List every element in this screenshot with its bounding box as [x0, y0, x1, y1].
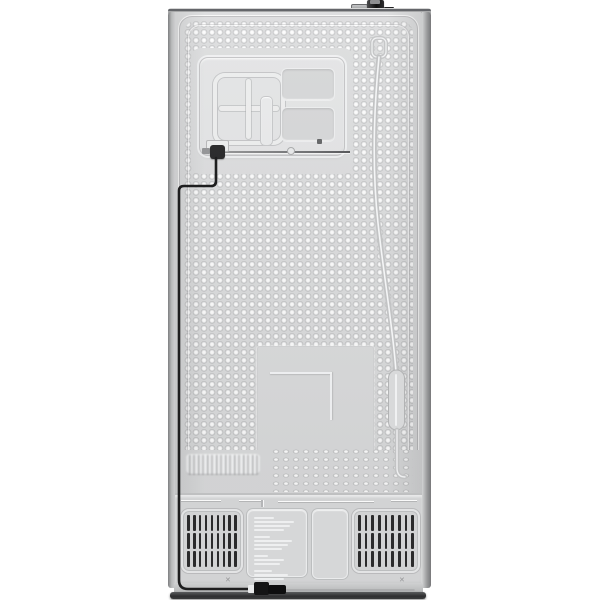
panel-lighting: [175, 12, 422, 493]
vent-slat: [234, 515, 237, 531]
vent-slat: [228, 515, 231, 531]
vent-slat: [193, 533, 196, 549]
right-side-wall: [422, 12, 431, 588]
base-strip: [174, 583, 423, 592]
mid-access-panel: [312, 509, 348, 579]
vent-slat: [391, 515, 394, 531]
vent-grille-right: [352, 509, 420, 573]
vent-slat: [391, 533, 394, 549]
vent-slat: [398, 515, 401, 531]
seam-tab: [239, 500, 261, 502]
vent-slat: [205, 515, 208, 531]
vent-slat: [405, 515, 408, 531]
rating-label: [247, 509, 307, 577]
vent-slat: [405, 551, 408, 567]
vent-slat: [193, 551, 196, 567]
rating-label-lines: [254, 517, 300, 591]
vent-slat: [378, 533, 381, 549]
vent-slat: [365, 515, 368, 531]
label-line: [254, 529, 284, 531]
seam-tab: [391, 500, 417, 502]
vent-slat: [199, 515, 202, 531]
vent-slat: [211, 533, 214, 549]
vent-slat: [365, 551, 368, 567]
vent-slat: [223, 533, 226, 549]
vent-slat-row: [358, 515, 414, 531]
vent-slat: [371, 515, 374, 531]
label-line-group: [254, 517, 300, 531]
label-line: [254, 578, 284, 580]
vent-slat: [193, 515, 196, 531]
vent-slat: [223, 551, 226, 567]
vent-slat: [217, 515, 220, 531]
vent-slat: [371, 551, 374, 567]
label-line: [254, 544, 288, 546]
vent-slat: [228, 533, 231, 549]
vent-slat: [385, 551, 388, 567]
vent-slat: [211, 551, 214, 567]
label-line: [254, 525, 290, 527]
vent-grille-left: [181, 509, 243, 573]
vent-slat: [234, 551, 237, 567]
vent-slat: [234, 533, 237, 549]
vent-slat-row: [187, 551, 237, 567]
vent-slat: [371, 533, 374, 549]
vent-slat: [217, 551, 220, 567]
vent-slat: [205, 533, 208, 549]
vent-slat: [378, 515, 381, 531]
label-line: [254, 548, 282, 550]
label-line: [254, 574, 288, 576]
vent-slat: [398, 533, 401, 549]
label-line: [254, 517, 274, 519]
label-line: [254, 563, 280, 565]
vent-slat: [378, 551, 381, 567]
vent-slat: [385, 533, 388, 549]
label-line-group: [254, 555, 300, 565]
seam-tab: [278, 501, 374, 503]
label-line: [254, 536, 270, 538]
vent-slat-row: [358, 533, 414, 549]
vent-slat-row: [358, 551, 414, 567]
vent-slat: [358, 551, 361, 567]
vent-slat: [358, 533, 361, 549]
label-line: [254, 570, 272, 572]
vent-slat: [391, 551, 394, 567]
label-line-group: [254, 570, 300, 580]
vent-slat: [405, 533, 408, 549]
vent-slat: [205, 551, 208, 567]
label-line: [254, 559, 284, 561]
vent-slat: [365, 533, 368, 549]
back-panel: [175, 12, 422, 493]
vent-slat: [187, 515, 190, 531]
seam-tab: [181, 500, 221, 502]
vent-slat: [411, 551, 414, 567]
label-line: [254, 555, 268, 557]
valve-cap: [370, 0, 380, 4]
compressor-compartment: ✕ ✕: [175, 493, 422, 585]
vent-slat: [199, 533, 202, 549]
vent-slat: [187, 551, 190, 567]
vent-slat: [411, 515, 414, 531]
vent-slat: [217, 533, 220, 549]
vent-slat: [211, 515, 214, 531]
seam-notch: [261, 500, 263, 507]
vent-slat: [385, 515, 388, 531]
label-line: [254, 540, 292, 542]
vent-slat-row: [187, 533, 237, 549]
product-photo-stage: ✕ ✕: [0, 0, 600, 600]
vent-slat: [199, 551, 202, 567]
floor-shadow: [170, 592, 426, 599]
vent-slat: [398, 551, 401, 567]
vent-slat: [358, 515, 361, 531]
vent-slat-row: [187, 515, 237, 531]
vent-slat: [411, 533, 414, 549]
vent-slat: [187, 533, 190, 549]
vent-slat: [228, 551, 231, 567]
vent-slat: [223, 515, 226, 531]
label-line: [254, 521, 294, 523]
label-line-group: [254, 536, 300, 550]
refrigerator-back: ✕ ✕: [168, 8, 431, 598]
